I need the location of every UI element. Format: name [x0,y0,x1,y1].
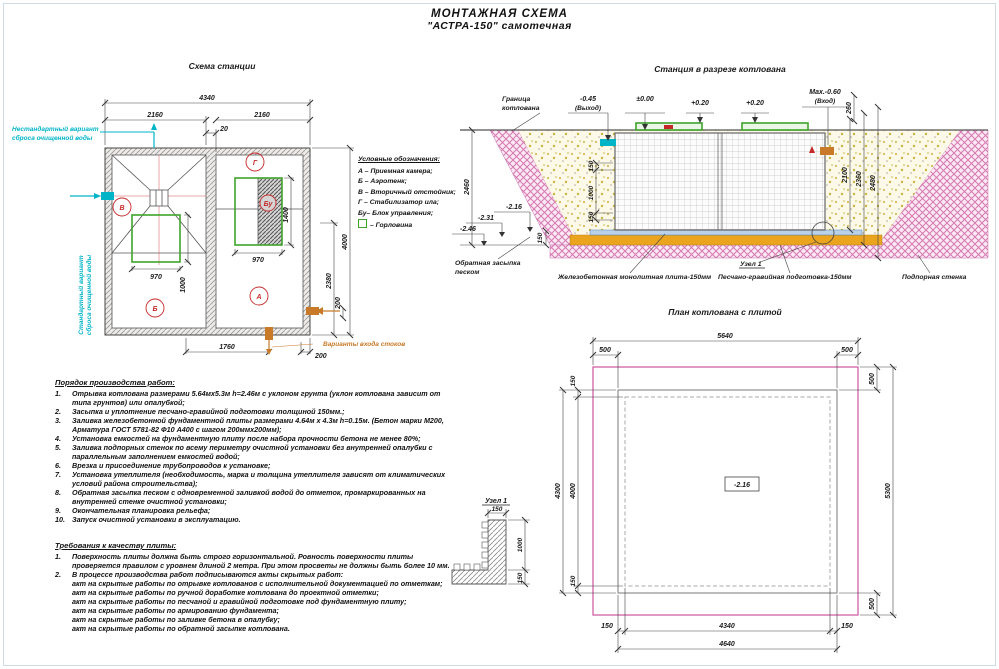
dim-left-bottom: 150 [570,575,577,586]
dim-left-top: 150 [570,375,577,386]
plan-bottom-dimensions: 1760 200 [186,338,327,360]
elev-bottom2: -2.31 [478,215,494,222]
quality-act: акт на скрытые работы по отрывке котлова… [72,579,460,588]
standard-discharge-label: Стандартный вариант [77,255,85,335]
quality-act: акт на скрытые работы по заливке бетона … [72,615,460,624]
section-view-drawing: Станция в разрезе котлована -0.45 (Выход… [450,55,995,290]
legend-item-neck: – Горловина [358,219,462,232]
svg-text:(Вход): (Вход) [815,97,835,105]
foundation-layers [570,230,882,245]
pit-plan-dimensions: 5640 500 500 500 5300 500 4300 150 4000 … [555,333,897,653]
gravel-prep-layer [570,235,882,245]
station-plan-title: Схема станции [189,61,257,71]
dim-right-top: 500 [869,373,876,385]
node-dim-bottom: 150 [517,572,524,583]
dim-left-inner: 4000 [570,483,577,500]
legend-item: В – Вторичный отстойник; [358,188,462,199]
legend-item: Бу– Блок управления; [358,209,462,220]
compartment-b-label: Б [153,306,158,313]
dim-right-bottom: 500 [869,598,876,610]
retaining-wall-detail [452,520,506,584]
dim-bottom-center: 4340 [718,623,735,630]
elev-outlet: -0.45 [580,96,596,103]
node-detail-title: Узел 1 [485,498,507,505]
tank-lid-right [742,123,808,130]
section-view-title: Станция в разрезе котлована [654,64,786,74]
work-order-item: 9.Окончательная планировка рельефа; [55,506,460,515]
svg-text:(Выход): (Выход) [575,104,601,112]
quality-item: 1.Поверхность плиты должна быть строго г… [55,552,460,570]
svg-text:сброса очищенной воды: сброса очищенной воды [85,254,93,335]
neck-symbol-icon [358,219,367,228]
quality-act: акт на скрытые работы по армированию фун… [72,606,460,615]
elev-lid1: +0.20 [691,100,709,107]
dim-left-width: 2160 [146,112,163,119]
work-order-block: Порядок производства работ: 1.Отрывка ко… [55,378,460,524]
slab-label: Железобетонная монолитная плита-150мм [557,273,711,281]
dim-right-width: 2160 [253,112,270,119]
page-title-line1: МОНТАЖНАЯ СХЕМА [0,8,999,20]
quality-title: Требования к качеству плиты: [55,541,460,550]
work-order-item: 4.Установка емкостей на фундаментную пли… [55,434,460,443]
dim-inlet-offset-side: 200 [335,297,342,310]
tank-footprint [625,397,830,586]
quality-act: акт на скрытые работы по песчаной и грав… [72,597,460,606]
dim-bottom-left: 150 [601,623,613,630]
dim-neck-right-w: 970 [252,257,264,264]
work-order-item: 8.Обратная засыпка песком с одновременно… [55,488,460,506]
quality-item: 2.В процессе производства работ подписыв… [55,570,460,579]
discharge-arrow-right-icon [94,193,101,199]
pit-boundary-label: Граница [502,96,530,103]
legend-item: А – Приемная камера; [358,167,462,178]
elev-inlet: Max.-0.60 [809,89,841,96]
inlet-mark-bottom [265,327,273,340]
slab-outline [618,390,837,593]
work-order-item: 1.Отрывка котлована размерами 5.64мx5.3м… [55,389,460,407]
dim-2480: 2480 [870,175,877,192]
svg-text:сброса очищенной воды: сброса очищенной воды [12,134,93,142]
dim-260: 260 [846,102,853,115]
compartment-v-label: В [119,205,124,212]
dim-top-right: 500 [841,347,853,354]
dim-top-total: 5640 [717,333,733,340]
dim-inlet-span: 1760 [219,344,235,351]
dim-inlet-height: 2380 [326,273,333,290]
backfill-label: Обратная засыпка [455,259,521,267]
dim-neck-right-h: 1400 [283,207,290,223]
dim-1000: 1000 [588,185,595,200]
tank-section [600,123,834,230]
page-title: МОНТАЖНАЯ СХЕМА "АСТРА-150" самотечная [0,8,999,32]
dim-total-width: 4340 [198,95,215,102]
svg-text:котлована: котлована [502,105,540,112]
node-dim-top: 150 [492,506,503,513]
elev-bottom1: -2.16 [506,204,522,211]
quality-act: акт на скрытые работы по обратной засыпк… [72,624,460,633]
dim-2360: 2360 [856,171,863,188]
legend: Условные обозначения: А – Приемная камер… [358,155,462,232]
page-title-line2: "АСТРА-150" самотечная [0,20,999,32]
inlet-options-label: Варианты входа стоков [323,340,405,348]
legend-item: Б – Аэротенк; [358,177,462,188]
quality-block: Требования к качеству плиты: 1.Поверхнос… [55,541,460,633]
dim-top-left: 500 [599,347,611,354]
lid-vent-mark [664,125,673,129]
drawing-sheet: МОНТАЖНАЯ СХЕМА "АСТРА-150" самотечная С… [0,0,999,669]
concrete-slab [590,230,862,235]
dim-bottom-total: 4640 [718,641,735,648]
dim-neck-left-w: 970 [150,274,162,281]
dim-2100: 2100 [842,167,849,184]
legend-title: Условные обозначения: [358,155,462,166]
work-order-title: Порядок производства работ: [55,378,460,387]
plan-right-dimensions: 4000 2380 200 [312,148,354,335]
dim-right-total: 5300 [885,483,892,499]
dim-150-left: 150 [537,232,544,243]
pit-plan-title: План котлована с плитой [668,307,782,317]
work-order-item: 3.Заливка железобетонной фундаментной пл… [55,416,460,434]
compartment-bu-label: Бу [264,201,274,208]
dim-gap: 20 [219,126,228,133]
node1-ref-label: Узел 1 [740,261,762,268]
quality-acts: акт на скрытые работы по отрывке котлова… [72,579,460,633]
pit-plan-drawing: План котлована с плитой -2.16 5640 500 5… [545,295,995,667]
work-order-item: 7.Установка утеплителя (необходимость, м… [55,470,460,488]
dim-inlet-offset-bottom: 200 [314,353,327,360]
plan-top-dimensions: 4340 2160 2160 20 [105,95,310,152]
svg-text:песком: песком [455,269,479,276]
discharge-arrow-up-icon [151,123,157,130]
control-unit-block [258,178,282,245]
dim-2460: 2460 [464,179,471,196]
work-order-item: 2.Засыпка и уплотнение песчано-гравийной… [55,407,460,416]
retaining-wall-label: Подпорная стенка [902,273,967,281]
elev-lid2: +0.20 [746,100,764,107]
dim-bottom-right: 150 [841,623,853,630]
node-dim-side: 1000 [517,537,524,552]
compartment-g-label: Г [253,160,258,167]
center-elevation: -2.16 [734,482,750,489]
quality-act: акт на скрытые работы по ручной доработк… [72,588,460,597]
elev-zero: ±0.00 [636,96,654,103]
inlet-pipe [820,147,834,155]
prep-label: Песчано-гравийная подготовка-150мм [718,273,852,281]
work-order-item: 5.Заливка подпорных стенок по всему пери… [55,443,460,461]
work-order-item: 10.Запуск очистной установки в эксплуата… [55,515,460,524]
legend-item: Г – Стабилизатор ила; [358,198,462,209]
nonstandard-discharge-label: Нестандартный вариант [12,125,99,133]
elev-bottom3: -2.46 [460,226,476,233]
dim-total-height: 4000 [342,234,349,251]
dim-150a: 150 [588,160,595,171]
dim-neck-left-h: 1000 [180,277,187,293]
dim-150b: 150 [588,211,595,222]
work-order-item: 6.Врезка и присоединение трубопроводов к… [55,461,460,470]
compartment-a-label: А [255,294,261,301]
discharge-pipe-stub [101,192,114,200]
